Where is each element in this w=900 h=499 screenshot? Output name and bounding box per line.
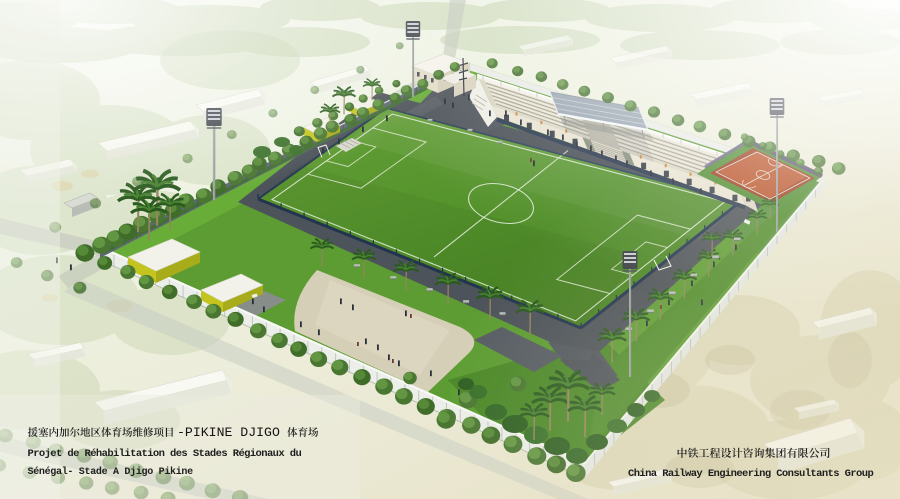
svg-text:Projet de Réhabilitation des S: Projet de Réhabilitation des Stades Régi…	[28, 448, 302, 460]
svg-text:China Railway Engineering Cons: China Railway Engineering Consultants Gr…	[628, 468, 873, 480]
svg-text:-PIKINE DJIGO: -PIKINE DJIGO	[177, 425, 280, 440]
svg-text:Sénégal- Stade A Djigo Pikine: Sénégal- Stade A Djigo Pikine	[28, 466, 194, 478]
